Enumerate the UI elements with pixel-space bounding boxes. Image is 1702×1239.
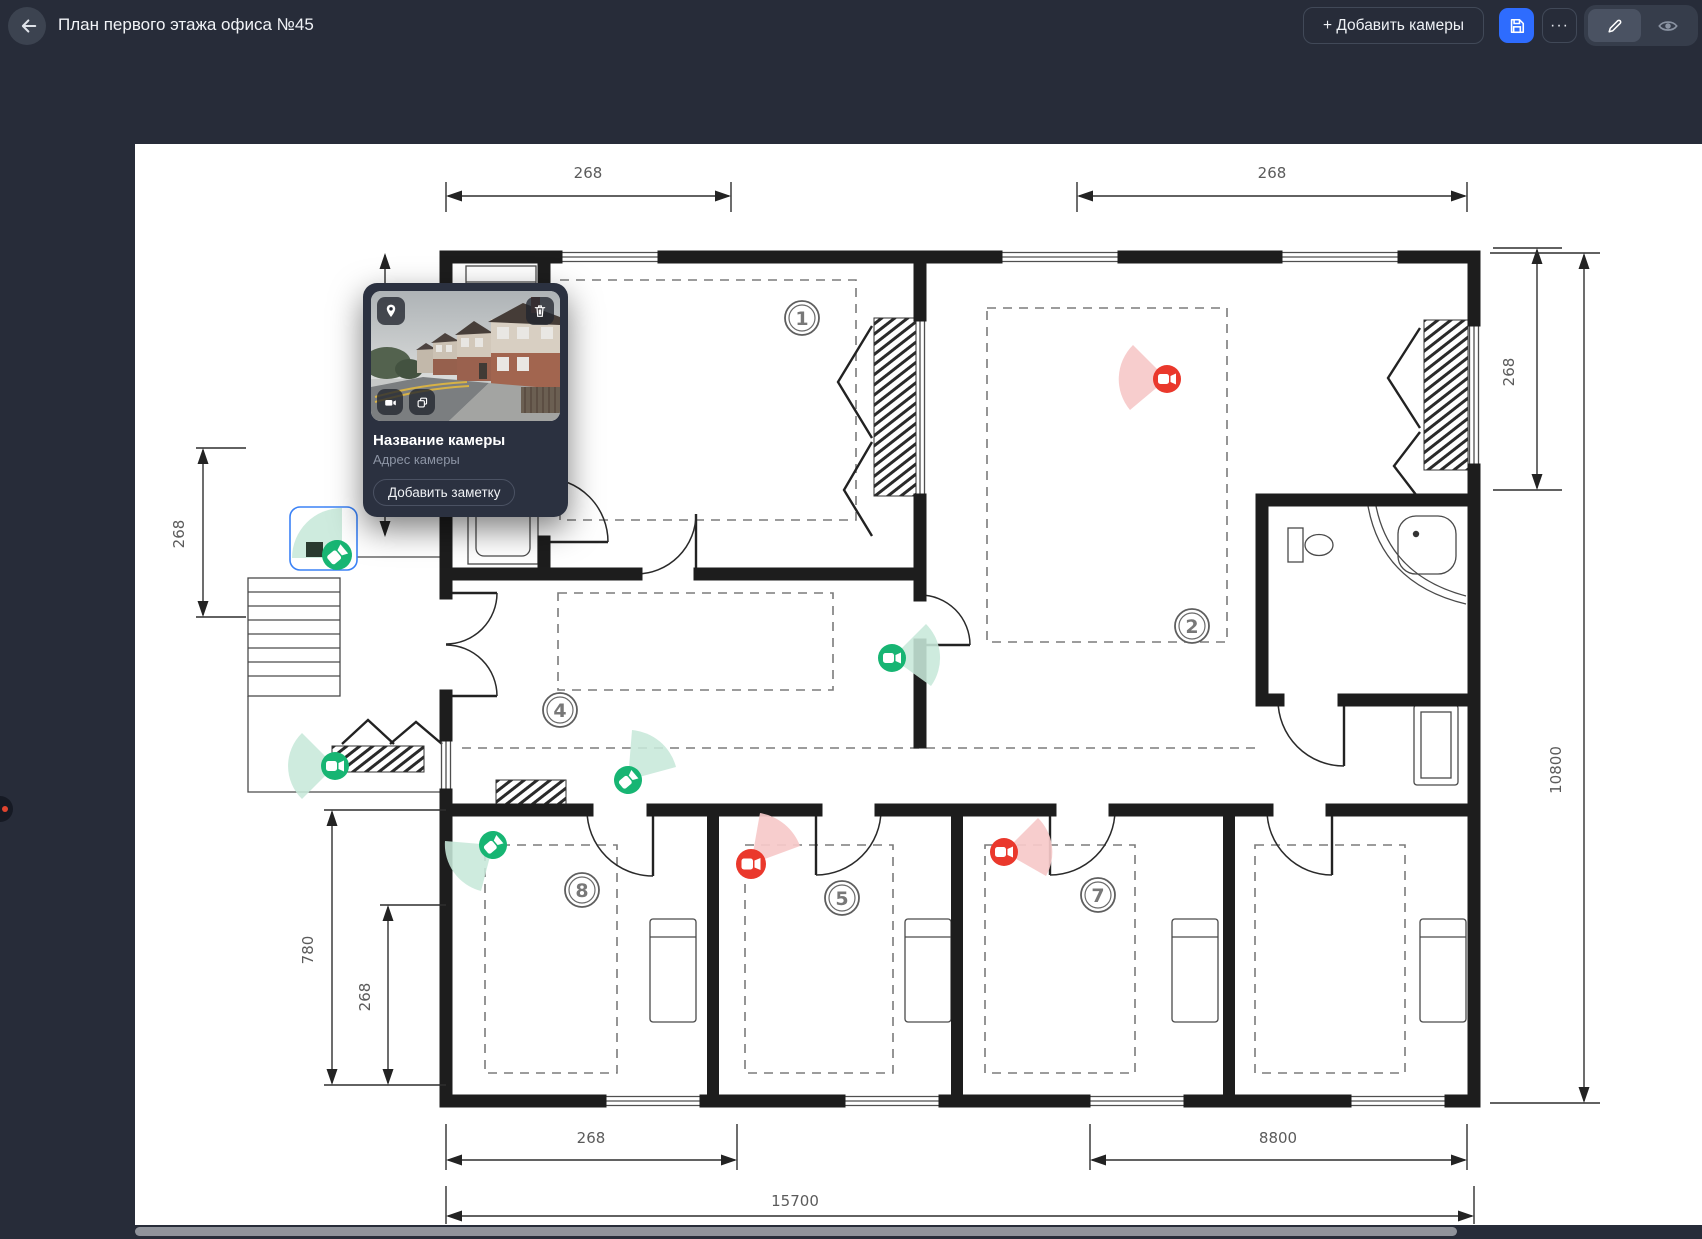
dim-top-right: 268 xyxy=(1258,164,1287,182)
canvas-edge-handle[interactable] xyxy=(0,796,13,822)
dim-right-upper: 268 xyxy=(1500,358,1518,387)
page-title: План первого этажа офиса №45 xyxy=(58,15,314,35)
dim-bottom-left: 268 xyxy=(577,1129,606,1147)
camera-photo[interactable] xyxy=(371,291,560,421)
video-camera-icon xyxy=(1158,374,1176,385)
svg-text:8: 8 xyxy=(575,880,588,902)
camera-name: Название камеры xyxy=(373,432,558,449)
dim-left-wing: 780 xyxy=(299,936,317,965)
room-label-7: 7 xyxy=(1081,878,1115,912)
room-label-1: 1 xyxy=(785,301,819,335)
svg-text:2: 2 xyxy=(1185,616,1198,638)
svg-text:1: 1 xyxy=(795,308,808,330)
camera-popup: Название камеры Адрес камеры Добавить за… xyxy=(363,283,568,517)
view-mode-button[interactable] xyxy=(1641,9,1694,42)
trash-icon xyxy=(532,303,548,319)
room-label-5: 5 xyxy=(825,881,859,915)
delete-camera-button[interactable] xyxy=(526,297,554,325)
copy-button[interactable] xyxy=(409,389,435,415)
video-camera-icon xyxy=(742,858,761,870)
location-pin-icon xyxy=(383,303,399,319)
room-label-8: 8 xyxy=(565,873,599,907)
video-camera-icon xyxy=(326,761,344,772)
svg-text:4: 4 xyxy=(553,700,566,722)
video-camera-icon xyxy=(883,653,901,664)
svg-text:5: 5 xyxy=(835,888,848,910)
room-label-2: 2 xyxy=(1175,609,1209,643)
mode-toggle xyxy=(1584,5,1698,46)
camera-address: Адрес камеры xyxy=(373,452,558,467)
add-cameras-button[interactable]: + Добавить камеры xyxy=(1303,7,1484,44)
video-camera-icon xyxy=(383,395,398,410)
svg-text:7: 7 xyxy=(1091,885,1104,907)
camera-7[interactable] xyxy=(736,849,766,879)
save-icon xyxy=(1507,16,1527,36)
camera-type-button[interactable] xyxy=(377,389,403,415)
camera-2[interactable] xyxy=(878,644,906,672)
pin-button[interactable] xyxy=(377,297,405,325)
dim-left-porch: 268 xyxy=(170,520,188,549)
eye-icon xyxy=(1657,15,1679,37)
dim-left-wing-inner: 268 xyxy=(356,983,374,1012)
edit-mode-button[interactable] xyxy=(1588,9,1641,42)
room-label-4: 4 xyxy=(543,693,577,727)
pencil-icon xyxy=(1605,16,1625,36)
handle-dot-icon xyxy=(2,806,8,812)
camera-8[interactable] xyxy=(990,838,1018,866)
camera-3[interactable] xyxy=(1153,365,1181,393)
back-button[interactable] xyxy=(8,7,46,45)
copy-icon xyxy=(415,395,430,410)
save-button[interactable] xyxy=(1499,8,1534,43)
dim-top-left: 268 xyxy=(574,164,603,182)
video-camera-icon xyxy=(995,847,1013,858)
header: План первого этажа офиса №45 + Добавить … xyxy=(0,0,1702,52)
camera-4[interactable] xyxy=(321,752,349,780)
add-note-button[interactable]: Добавить заметку xyxy=(373,479,515,506)
dim-right-total: 10800 xyxy=(1547,746,1565,794)
horizontal-scrollbar[interactable] xyxy=(135,1227,1457,1236)
dim-bottom-total: 15700 xyxy=(771,1192,819,1210)
arrow-left-icon xyxy=(16,15,38,37)
dim-bottom-right: 8800 xyxy=(1259,1129,1297,1147)
more-button[interactable]: ··· xyxy=(1542,8,1577,43)
